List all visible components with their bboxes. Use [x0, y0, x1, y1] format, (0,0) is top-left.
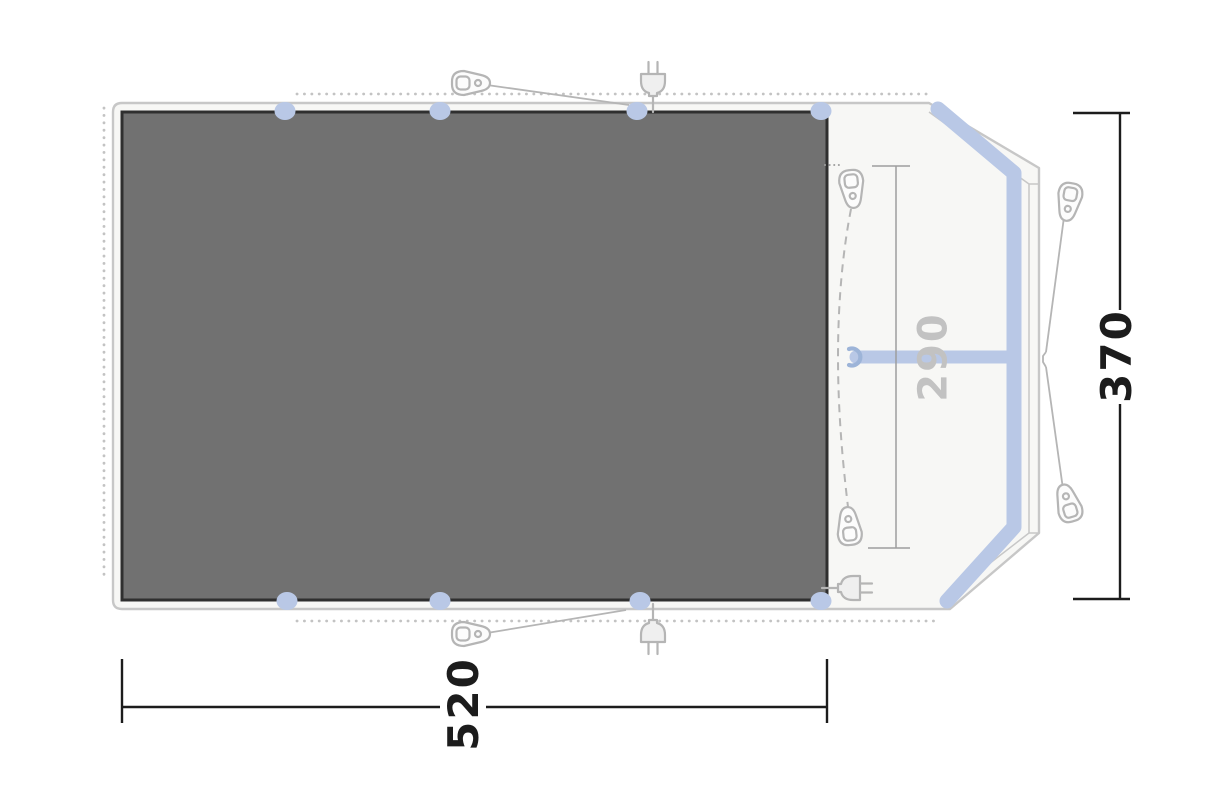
groundsheet	[122, 112, 827, 600]
width-label: 520	[439, 657, 488, 751]
porch-width-label: 290	[910, 312, 956, 402]
tent-peg-icon	[452, 622, 490, 646]
power-plug-icon	[641, 604, 665, 654]
tent-peg-icon	[1051, 481, 1085, 524]
tent-floorplan-diagram: 290 520 370	[0, 0, 1230, 794]
depth-label: 370	[1092, 309, 1141, 403]
floorplan-canvas: 290 520 370	[0, 0, 1230, 794]
tent-peg-icon	[1054, 181, 1084, 223]
tent-peg-icon	[452, 71, 490, 95]
